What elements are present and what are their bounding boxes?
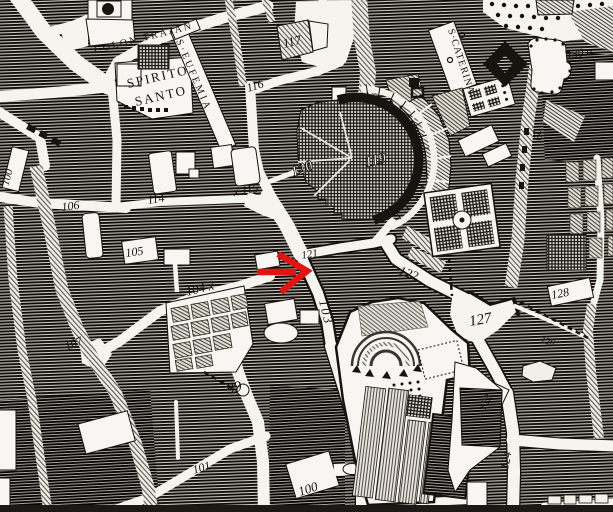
svg-text:105: 105 — [124, 244, 144, 260]
svg-text:106: 106 — [61, 198, 81, 214]
svg-text:114: 114 — [146, 190, 165, 207]
